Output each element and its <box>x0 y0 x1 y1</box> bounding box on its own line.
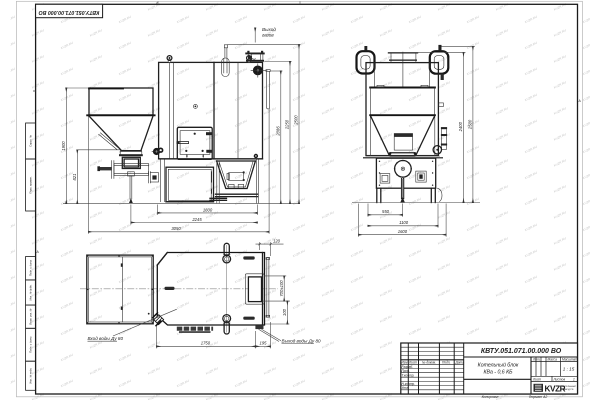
svg-text:Формат А2: Формат А2 <box>529 395 548 399</box>
svg-text:3050: 3050 <box>171 226 181 231</box>
svg-text:КВа - 0,6 КБ: КВа - 0,6 КБ <box>483 370 513 376</box>
svg-text:Масса: Масса <box>548 358 558 362</box>
svg-text:1600: 1600 <box>398 229 408 234</box>
svg-text:1: 1 <box>573 378 575 382</box>
svg-text:2500: 2500 <box>467 119 472 130</box>
svg-text:КВТУ.051.071.00.000 ВО: КВТУ.051.071.00.000 ВО <box>38 9 100 15</box>
svg-text:2250: 2250 <box>285 119 290 130</box>
svg-text:Вход воды Ду 80: Вход воды Ду 80 <box>88 336 124 341</box>
svg-text:100: 100 <box>282 308 287 316</box>
svg-text:Инв. № подл.: Инв. № подл. <box>29 367 33 383</box>
svg-text:газов: газов <box>262 33 274 38</box>
svg-text:Котельный блок: Котельный блок <box>478 362 519 369</box>
svg-text:Справ. №: Справ. № <box>29 135 33 147</box>
svg-text:120: 120 <box>273 239 281 244</box>
svg-text:700±100: 700±100 <box>279 280 284 297</box>
svg-text:Утв.: Утв. <box>402 386 409 390</box>
svg-text:Лит.: Лит. <box>532 358 541 362</box>
svg-text:2500: 2500 <box>294 115 299 126</box>
svg-text:195: 195 <box>260 341 268 346</box>
svg-text:1800: 1800 <box>203 207 213 212</box>
svg-text:Т.контр.: Т.контр. <box>402 373 415 377</box>
svg-text:821: 821 <box>72 174 77 181</box>
svg-text:Подп.: Подп. <box>442 360 451 364</box>
svg-text:Подп. и дата: Подп. и дата <box>29 259 33 276</box>
svg-text:КВТУ.051.071.00.000 ВО: КВТУ.051.071.00.000 ВО <box>481 348 562 355</box>
svg-text:Листов: Листов <box>553 378 566 382</box>
svg-text:Пров.: Пров. <box>402 369 411 373</box>
svg-text:ЗАВОД РФ: ЗАВОД РФ <box>563 388 574 391</box>
svg-text:Копировал: Копировал <box>482 395 499 399</box>
svg-text:1750: 1750 <box>201 341 211 346</box>
svg-text:550: 550 <box>382 209 390 214</box>
svg-text:Выход: Выход <box>262 27 276 32</box>
svg-text:№ докум.: № докум. <box>422 360 436 364</box>
svg-text:2086: 2086 <box>275 126 280 137</box>
svg-text:Выход воды Ду 80: Выход воды Ду 80 <box>282 338 322 343</box>
svg-text:1100: 1100 <box>399 220 409 225</box>
svg-text:Подп. и дата: Подп. и дата <box>29 336 33 353</box>
svg-text:2245: 2245 <box>191 217 202 222</box>
svg-text:2400: 2400 <box>458 121 463 132</box>
svg-text:1900: 1900 <box>61 141 66 151</box>
svg-text:Масштаб: Масштаб <box>562 358 577 362</box>
svg-text:Лист: Лист <box>532 378 542 382</box>
svg-text:КОТЕЛЬНЫЙ: КОТЕЛЬНЫЙ <box>562 385 576 388</box>
svg-text:1 : 15: 1 : 15 <box>563 367 575 372</box>
svg-text:Перв. примен.: Перв. примен. <box>29 176 33 194</box>
svg-text:Изм: Изм <box>402 360 409 364</box>
svg-text:Дата: Дата <box>455 360 465 364</box>
svg-text:Инв. № дубл.: Инв. № дубл. <box>29 284 33 300</box>
svg-text:Взам. инв. №: Взам. инв. № <box>29 308 33 324</box>
svg-text:Лист: Лист <box>408 360 418 364</box>
